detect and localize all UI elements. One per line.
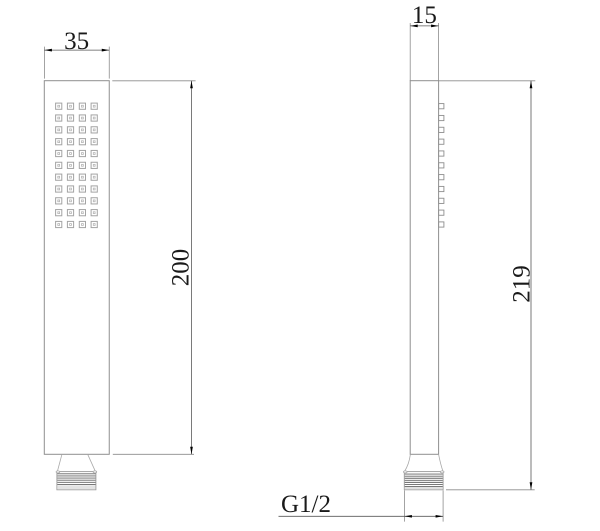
svg-text:15: 15 xyxy=(412,2,437,29)
svg-text:219: 219 xyxy=(508,265,535,303)
svg-text:G1/2: G1/2 xyxy=(281,491,331,518)
svg-text:200: 200 xyxy=(167,249,194,287)
svg-text:35: 35 xyxy=(64,28,89,55)
